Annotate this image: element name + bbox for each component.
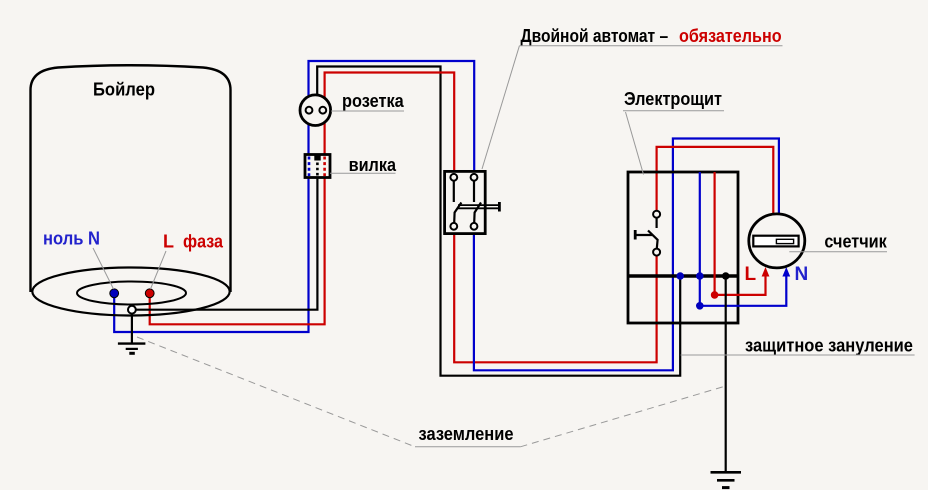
svg-text:защитное зануление: защитное зануление [745, 336, 913, 356]
svg-text:N: N [795, 264, 809, 285]
svg-text:заземление: заземление [419, 424, 514, 444]
svg-text:Бойлер: Бойлер [93, 80, 155, 100]
svg-text:Электрощит: Электрощит [624, 89, 722, 109]
svg-text:L: L [745, 264, 757, 285]
svg-text:ноль N: ноль N [43, 229, 100, 249]
svg-text:Lфаза: Lфаза [163, 232, 224, 252]
svg-text:розетка: розетка [342, 91, 405, 111]
svg-text:вилка: вилка [349, 155, 397, 175]
svg-text:счетчик: счетчик [824, 232, 887, 252]
svg-text:Двойной автомат – обязательно: Двойной автомат – обязательно [521, 26, 782, 46]
